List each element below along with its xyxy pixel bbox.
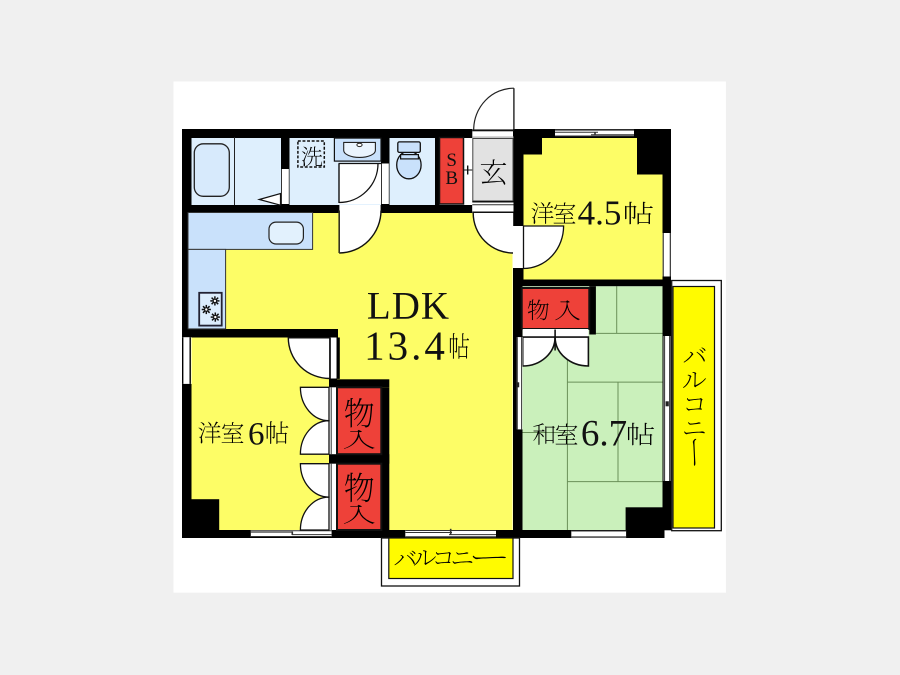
svg-text:13.4: 13.4 [364,323,448,369]
svg-text:6.7: 6.7 [581,414,627,455]
svg-text:LDK: LDK [367,285,450,328]
svg-text:B: B [445,168,458,189]
svg-text:4.5: 4.5 [578,194,622,233]
svg-text:6: 6 [248,416,265,452]
